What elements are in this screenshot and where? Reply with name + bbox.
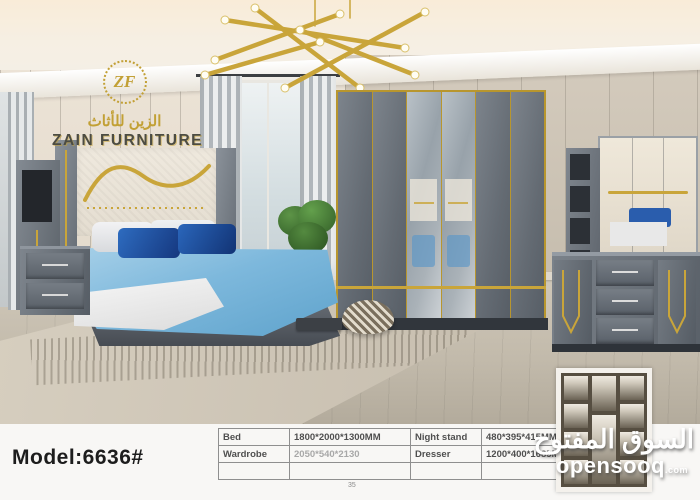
dresser-gold-accent	[664, 270, 690, 340]
wardrobe	[336, 90, 546, 322]
bedroom-photo: ZF الزين للأثاث ZAIN FURNITURE	[0, 0, 700, 424]
watermark-domain: opensooq.com	[504, 455, 688, 477]
headboard-gold-swoosh	[77, 150, 216, 220]
dresser-gold-accent	[558, 270, 584, 340]
nightstand-drawer	[26, 253, 84, 279]
gold-sputnik-chandelier	[200, 0, 435, 98]
dresser-mirror	[598, 136, 698, 260]
navy-pillow	[118, 228, 180, 258]
dresser-drawer	[596, 289, 654, 315]
patterned-pouf	[342, 300, 394, 334]
logo-arabic-text: الزين للأثاث	[52, 112, 197, 130]
spec-label: Dresser	[411, 446, 482, 463]
brand-logo: ZF الزين للأثاث ZAIN FURNITURE	[52, 60, 197, 155]
spec-value: 2050*540*2130	[290, 446, 411, 463]
logo-monogram: ZF	[114, 72, 136, 92]
dresser-drawer	[596, 318, 654, 344]
tower-shelf-cavity	[22, 170, 52, 222]
spec-value	[290, 463, 411, 480]
page-number: 35	[348, 482, 356, 489]
logo-brand-name: ZAIN FURNITURE	[52, 132, 197, 150]
watermark-tld: .com	[665, 465, 688, 475]
spec-label: Wardrobe	[219, 446, 290, 463]
spec-label: Bed	[219, 429, 290, 446]
spec-label: Night stand	[411, 429, 482, 446]
spec-label	[219, 463, 290, 480]
dark-tray	[296, 318, 342, 330]
opensooq-watermark: السوق المفتوح opensooq.com	[504, 426, 694, 477]
spec-value: 1800*2000*1300MM	[290, 429, 411, 446]
furniture-ad-page: ZF الزين للأثاث ZAIN FURNITURE	[0, 0, 700, 500]
nightstand	[20, 246, 90, 315]
navy-pillow	[178, 224, 236, 254]
logo-emblem-icon: ZF	[103, 60, 147, 104]
model-number: Model:6636#	[12, 446, 144, 470]
dresser-base	[552, 344, 700, 352]
spec-label	[411, 463, 482, 480]
nightstand-drawer	[26, 283, 84, 309]
dresser-drawer	[596, 260, 654, 286]
watermark-arabic: السوق المفتوح	[504, 426, 694, 452]
